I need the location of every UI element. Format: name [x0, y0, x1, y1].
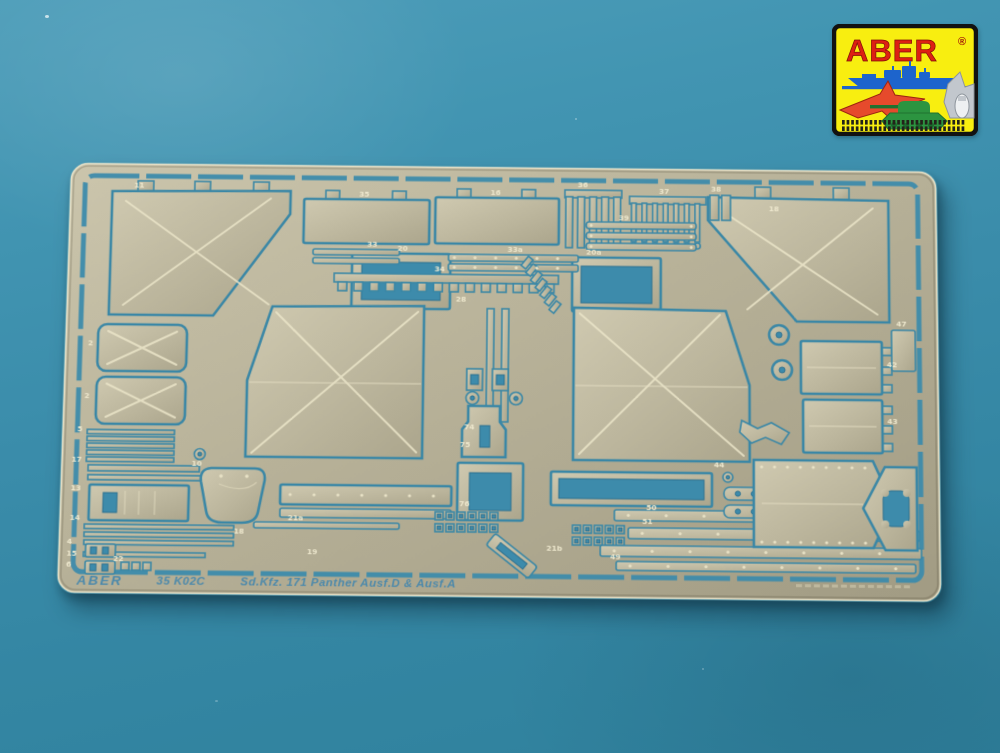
part-number-label: 6	[66, 560, 72, 569]
part-bottle-76	[462, 406, 506, 457]
part-number-label: 13	[70, 483, 81, 492]
part-number-label: 76	[459, 499, 469, 508]
part-frame-20a	[572, 257, 661, 312]
part-number-label: 44	[714, 460, 724, 469]
part-number-label: 21a	[288, 513, 304, 522]
part-number-label: 14	[69, 513, 80, 522]
part-number-label: 34	[435, 264, 445, 273]
part-number-label: 33	[367, 240, 377, 249]
part-number-label: 49	[610, 552, 620, 561]
registered-trademark: ®	[958, 36, 966, 48]
dust-speck	[215, 700, 218, 702]
fret-title-text: Sd.Kfz. 171 Panther Ausf.D & Ausf.A	[240, 576, 456, 590]
part-number-label: 36	[578, 180, 588, 189]
part-number-label: 35	[359, 190, 369, 199]
part-left-strip-stack	[86, 429, 174, 462]
dust-speck	[702, 668, 704, 670]
part-number-label: 47	[896, 320, 906, 329]
part-box-13	[88, 485, 189, 522]
part-panel-43	[803, 400, 893, 454]
part-number-label: 2	[84, 391, 89, 400]
part-number-label: 20	[397, 244, 407, 253]
part-number-label: 43	[887, 417, 897, 426]
part-number-label: 75	[460, 440, 470, 449]
fret-brand-text: ABER	[75, 572, 123, 588]
part-center-left-panel	[245, 304, 424, 458]
part-number-label: 2	[88, 338, 93, 347]
part-number-label: 42	[887, 360, 897, 369]
part-number-label: 22	[113, 554, 124, 563]
part-left-hatch-2b	[95, 377, 185, 425]
part-number-label: 10	[191, 459, 202, 468]
part-number-label: 18	[233, 526, 244, 535]
aber-logo: ABER ®	[832, 24, 978, 136]
dust-speck	[575, 118, 577, 120]
pe-fret-art: 11351636373818393333a2020a34282251713144…	[56, 162, 942, 603]
part-number-label: 17	[71, 455, 82, 464]
part-number-label: 21b	[546, 544, 562, 553]
part-number-label: 4	[67, 537, 72, 546]
part-number-label: 11	[134, 181, 144, 190]
part-number-label: 39	[619, 213, 629, 222]
aber-logo-brand: ABER	[846, 33, 938, 68]
photo-background: ABER ®	[0, 0, 1000, 753]
aber-logo-art: ABER ®	[832, 24, 978, 136]
part-window-bar-44	[551, 472, 712, 507]
part-number-label: 28	[456, 295, 466, 304]
part-number-label: 50	[646, 503, 656, 512]
part-panel-42	[801, 341, 892, 395]
part-number-label: 33a	[508, 245, 523, 254]
part-number-label: 20a	[586, 248, 601, 257]
part-number-label: 19	[307, 547, 318, 556]
part-number-label: 5	[77, 424, 82, 433]
part-number-label: 51	[642, 517, 652, 526]
dust-speck	[45, 15, 49, 18]
part-center-right-panel	[573, 308, 750, 462]
part-number-label: 18	[769, 204, 779, 213]
fret-set-number: 35 K02C	[156, 575, 205, 588]
part-number-label: 74	[464, 422, 474, 431]
part-left-hatch-2a	[97, 324, 187, 372]
part-strips-39	[586, 222, 696, 251]
part-number-label: 37	[659, 187, 669, 196]
part-number-label: 16	[490, 188, 500, 197]
pe-fret: 11351636373818393333a2020a34282251713144…	[56, 162, 942, 603]
part-number-label: 15	[66, 549, 77, 558]
part-number-label: 38	[711, 185, 721, 194]
